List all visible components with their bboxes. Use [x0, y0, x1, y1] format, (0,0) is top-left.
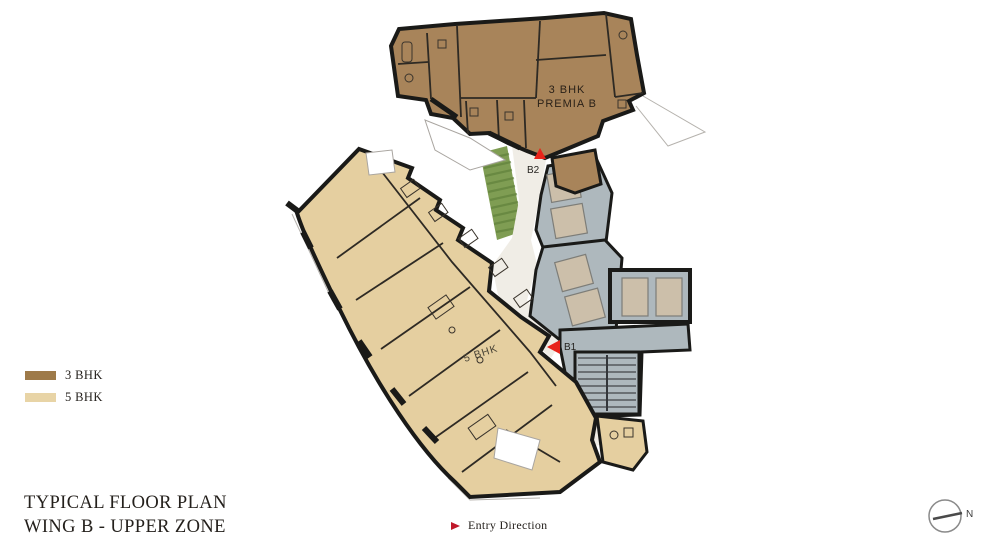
entry-direction-label: Entry Direction	[468, 518, 547, 533]
legend-label-3bhk: 3 BHK	[65, 368, 103, 383]
entry-marker-b1-label: B1	[564, 342, 577, 353]
north-label: N	[966, 509, 973, 520]
page-title-line2: WING B - UPPER ZONE	[24, 515, 227, 539]
entry-marker-b2-label: B2	[527, 165, 540, 176]
legend-item-5bhk: 5 BHK	[25, 386, 103, 408]
unit-label-3bhk-line1: 3 BHK	[549, 84, 586, 96]
legend-swatch-3bhk	[25, 371, 56, 380]
legend-item-3bhk: 3 BHK	[25, 364, 103, 386]
entry-direction-legend: Entry Direction	[451, 518, 547, 533]
page-title-line1: TYPICAL FLOOR PLAN	[24, 491, 227, 515]
floor-plan-svg: 5 BHK	[0, 0, 990, 550]
floor-plan-page: 5 BHK	[0, 0, 990, 550]
entry-arrow-icon	[451, 522, 460, 530]
legend-swatch-5bhk	[25, 393, 56, 402]
compass: N	[924, 495, 986, 541]
legend-label-5bhk: 5 BHK	[65, 390, 103, 405]
page-title: TYPICAL FLOOR PLAN WING B - UPPER ZONE	[24, 491, 227, 539]
legend: 3 BHK 5 BHK	[25, 364, 103, 408]
small-room-bottom	[597, 416, 647, 470]
unit-label-3bhk-line2: PREMIA B	[537, 98, 597, 110]
compass-icon	[924, 495, 986, 541]
